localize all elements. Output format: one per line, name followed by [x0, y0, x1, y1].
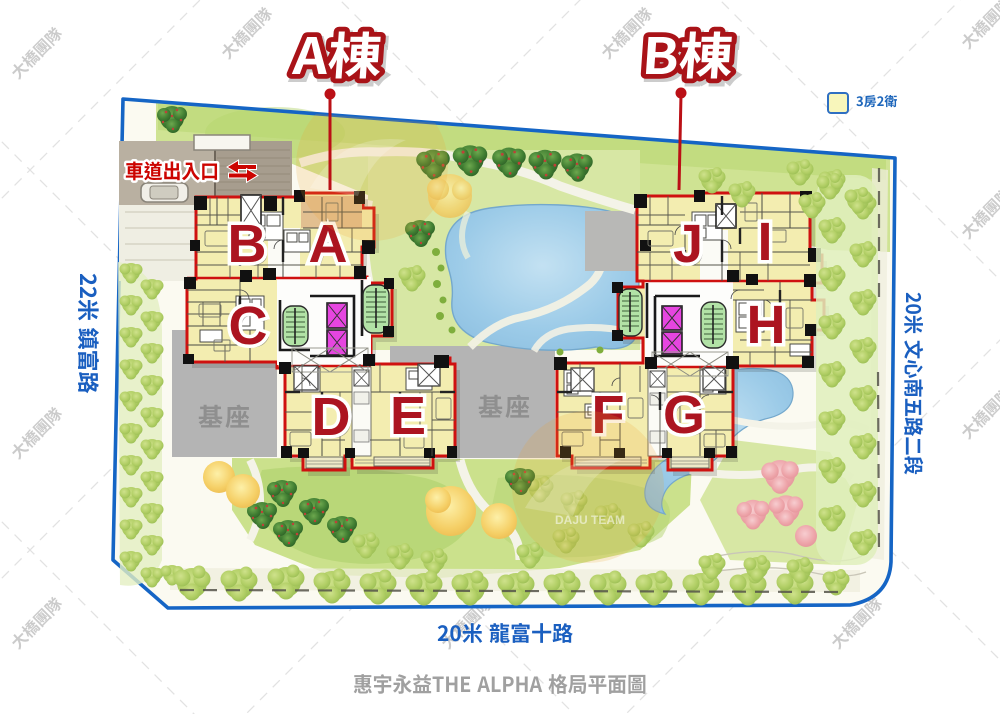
svg-text:H: H [747, 295, 786, 355]
svg-text:E: E [390, 386, 426, 446]
svg-text:D: D [312, 387, 351, 447]
svg-text:DAJU TEAM: DAJU TEAM [555, 513, 625, 527]
svg-text:B: B [228, 214, 267, 274]
svg-text:I: I [757, 212, 772, 272]
svg-text:G: G [663, 385, 705, 445]
svg-text:C: C [229, 296, 268, 356]
svg-text:J: J [673, 214, 703, 274]
